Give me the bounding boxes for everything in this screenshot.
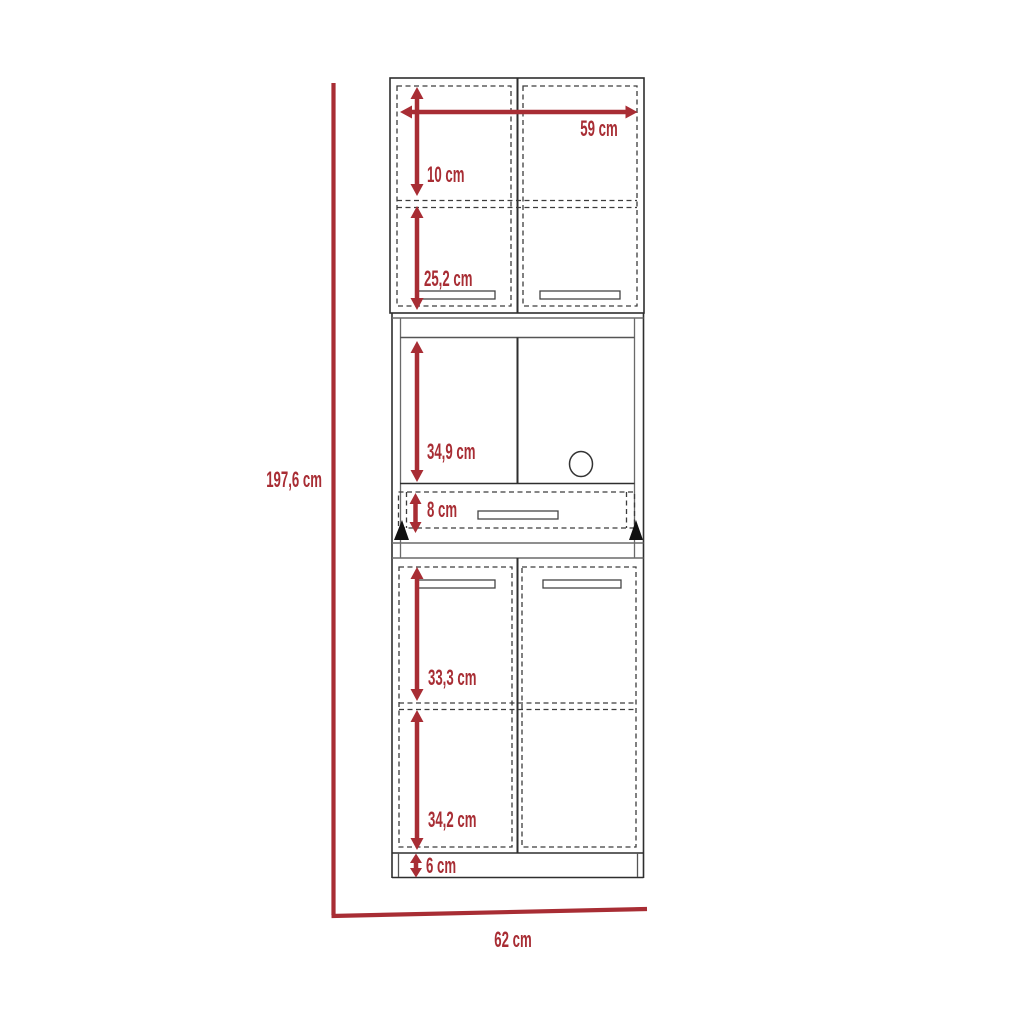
upper-right-door-handle (540, 291, 620, 299)
arrow-lower-bottom (411, 710, 424, 850)
drawer-runner-mark-left (394, 520, 409, 540)
arrow-base (410, 854, 422, 878)
dim-label-overall-width: 62 cm (482, 929, 544, 951)
drawer-runner-mark-right (629, 520, 643, 540)
dim-label-drawer: 8 cm (427, 499, 477, 521)
lower-right-door-handle (543, 580, 621, 588)
upper-left-door-handle (417, 291, 495, 299)
lower-right-door-dashed (522, 567, 636, 847)
dim-label-upper-cabinet: 25,2 cm (424, 268, 505, 290)
dim-label-middle-compartment: 34,9 cm (427, 441, 508, 463)
dimension-diagram: 197,6 cm 62 cm 59 cm 10 cm 25,2 cm 34,9 … (0, 0, 1024, 1024)
arrow-middle-compartment (411, 341, 424, 482)
lower-left-door-handle (417, 580, 495, 588)
cabinet-line-drawing (0, 0, 1024, 1024)
dim-label-lower-bottom: 34,2 cm (428, 809, 509, 831)
dim-label-top-width: 59 cm (568, 118, 630, 140)
overall-width-line (332, 909, 648, 916)
cable-hole-cutout (570, 452, 593, 477)
dim-label-overall-height: 197,6 cm (229, 469, 322, 491)
dim-label-top-shelf: 10 cm (427, 164, 489, 186)
dim-label-base: 6 cm (426, 855, 476, 877)
dim-label-lower-upper: 33,3 cm (428, 667, 509, 689)
drawer-handle (478, 511, 558, 519)
arrow-drawer (410, 493, 422, 533)
